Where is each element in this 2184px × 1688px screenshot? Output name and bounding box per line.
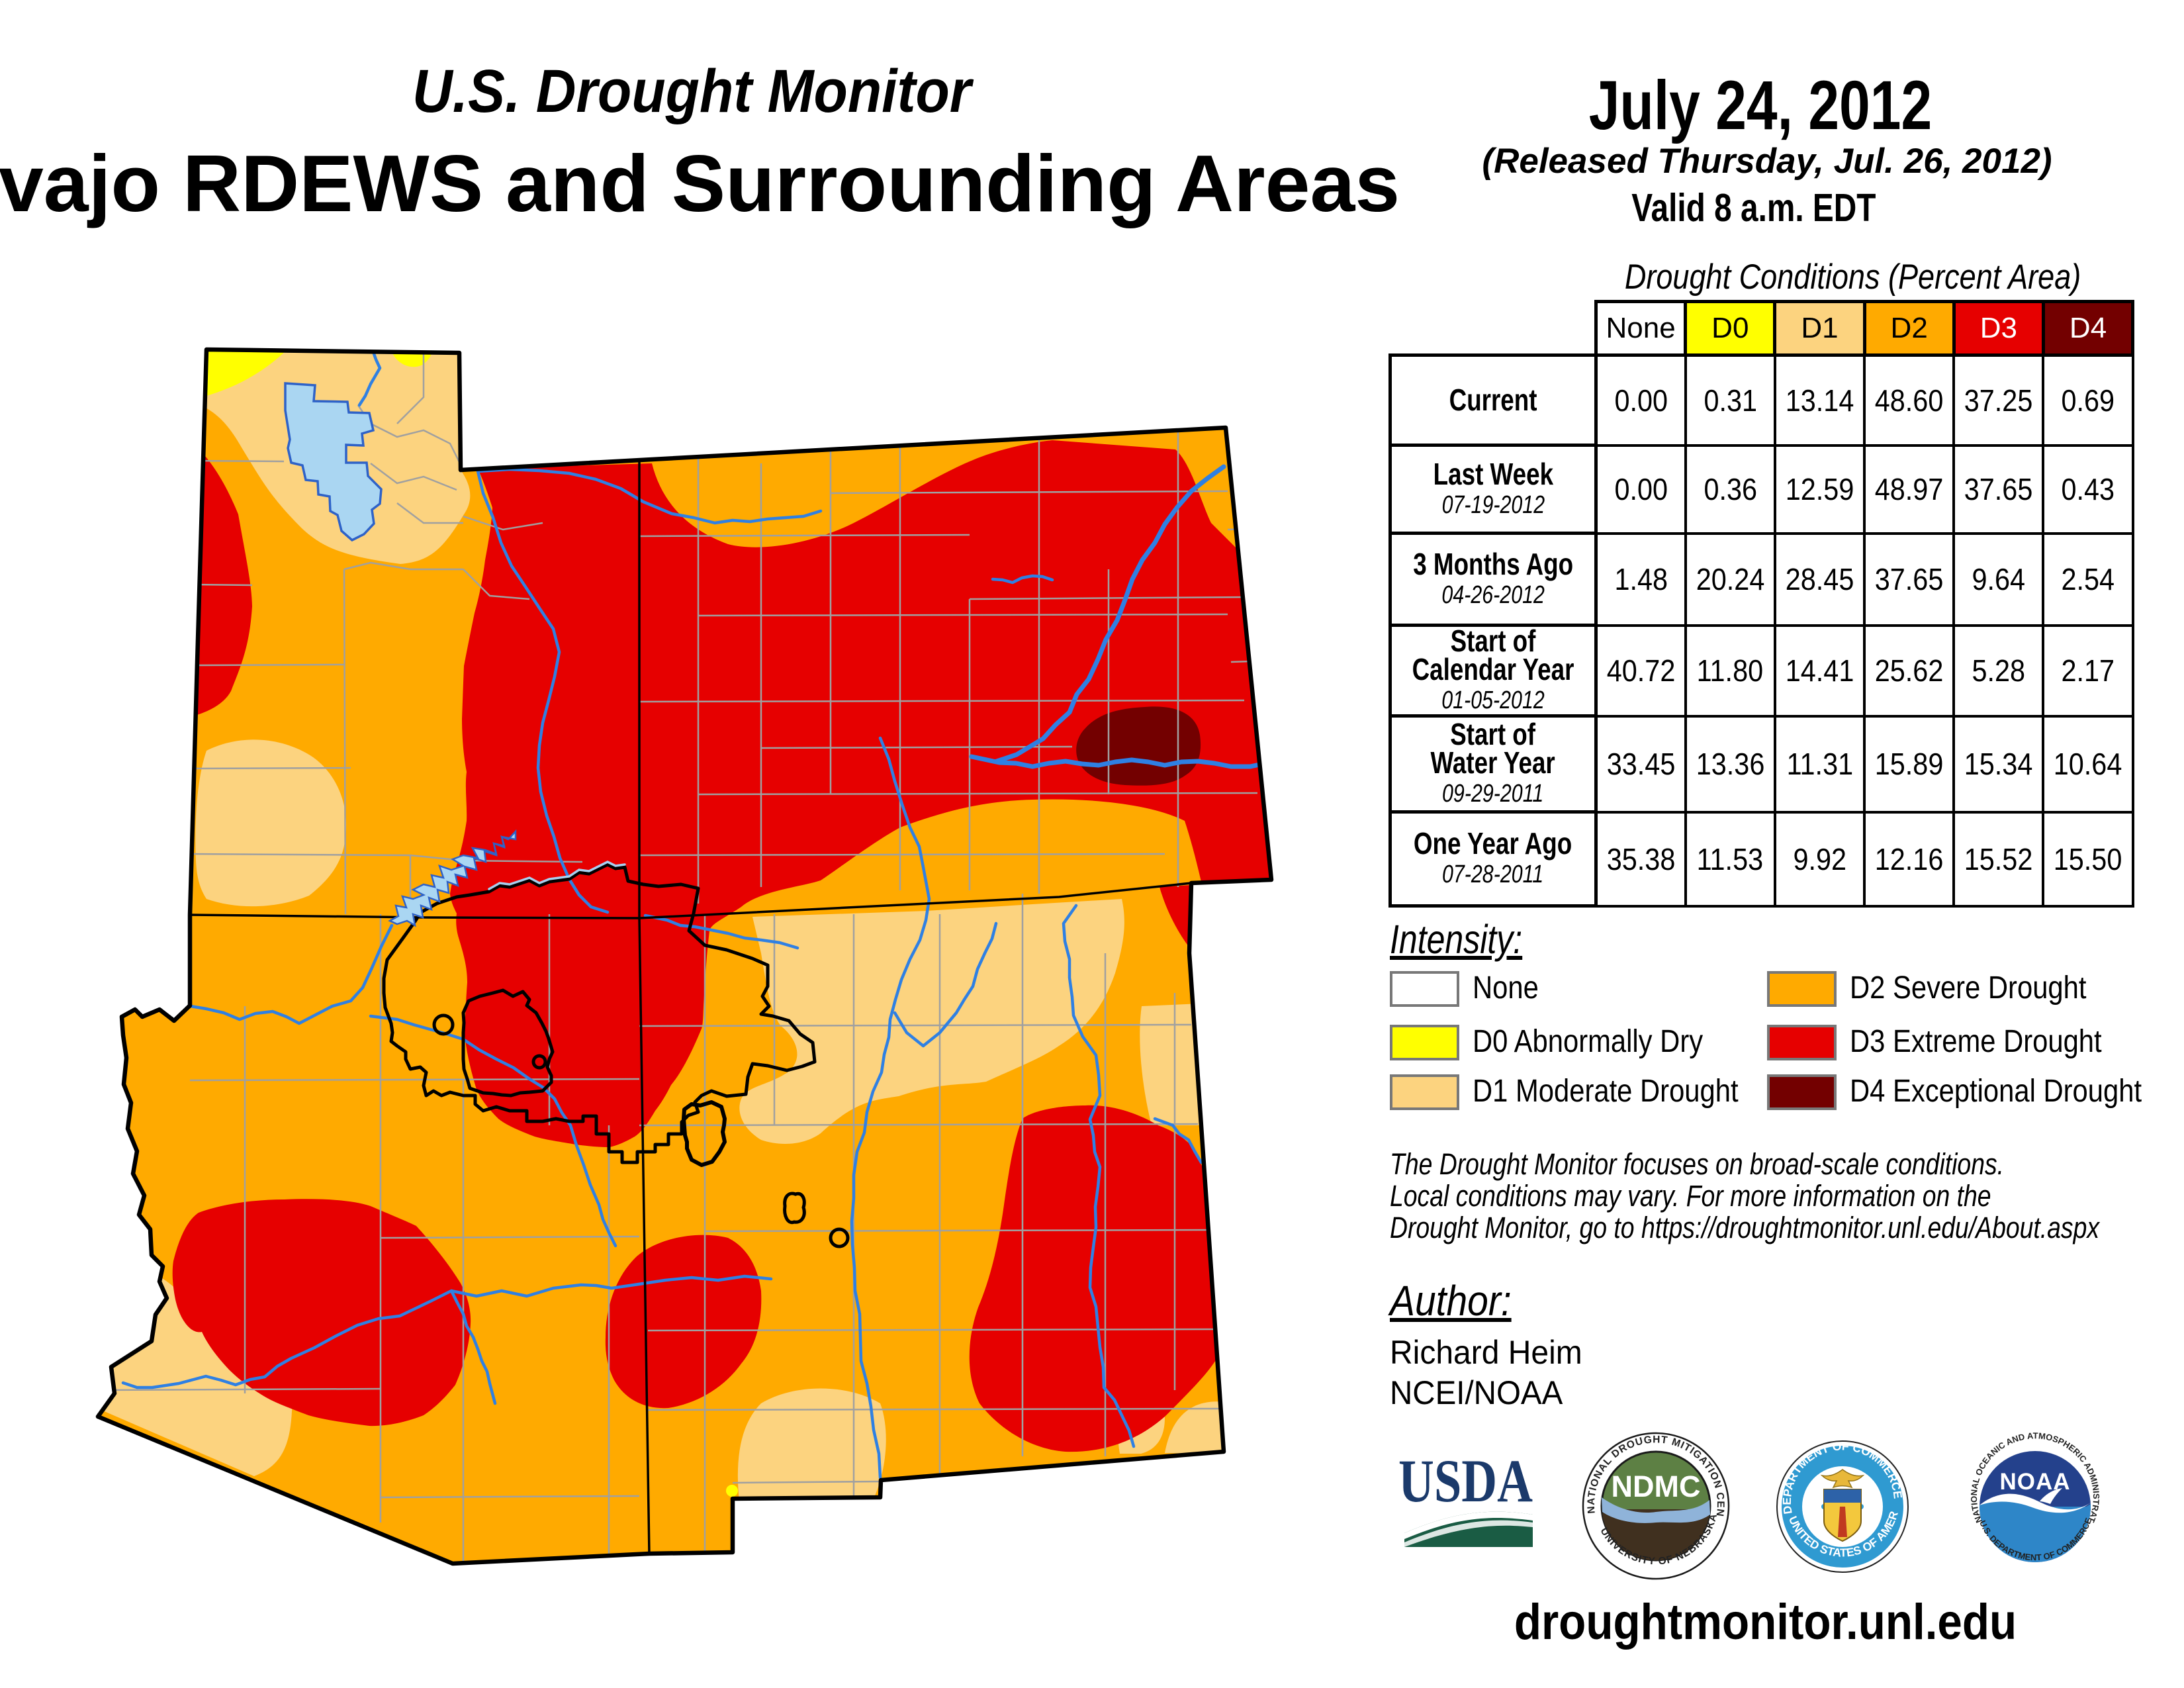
svg-text:NOAA: NOAA xyxy=(1999,1469,2070,1495)
svg-text:NDMC: NDMC xyxy=(1612,1470,1701,1503)
svg-text:USDA: USDA xyxy=(1398,1447,1533,1515)
